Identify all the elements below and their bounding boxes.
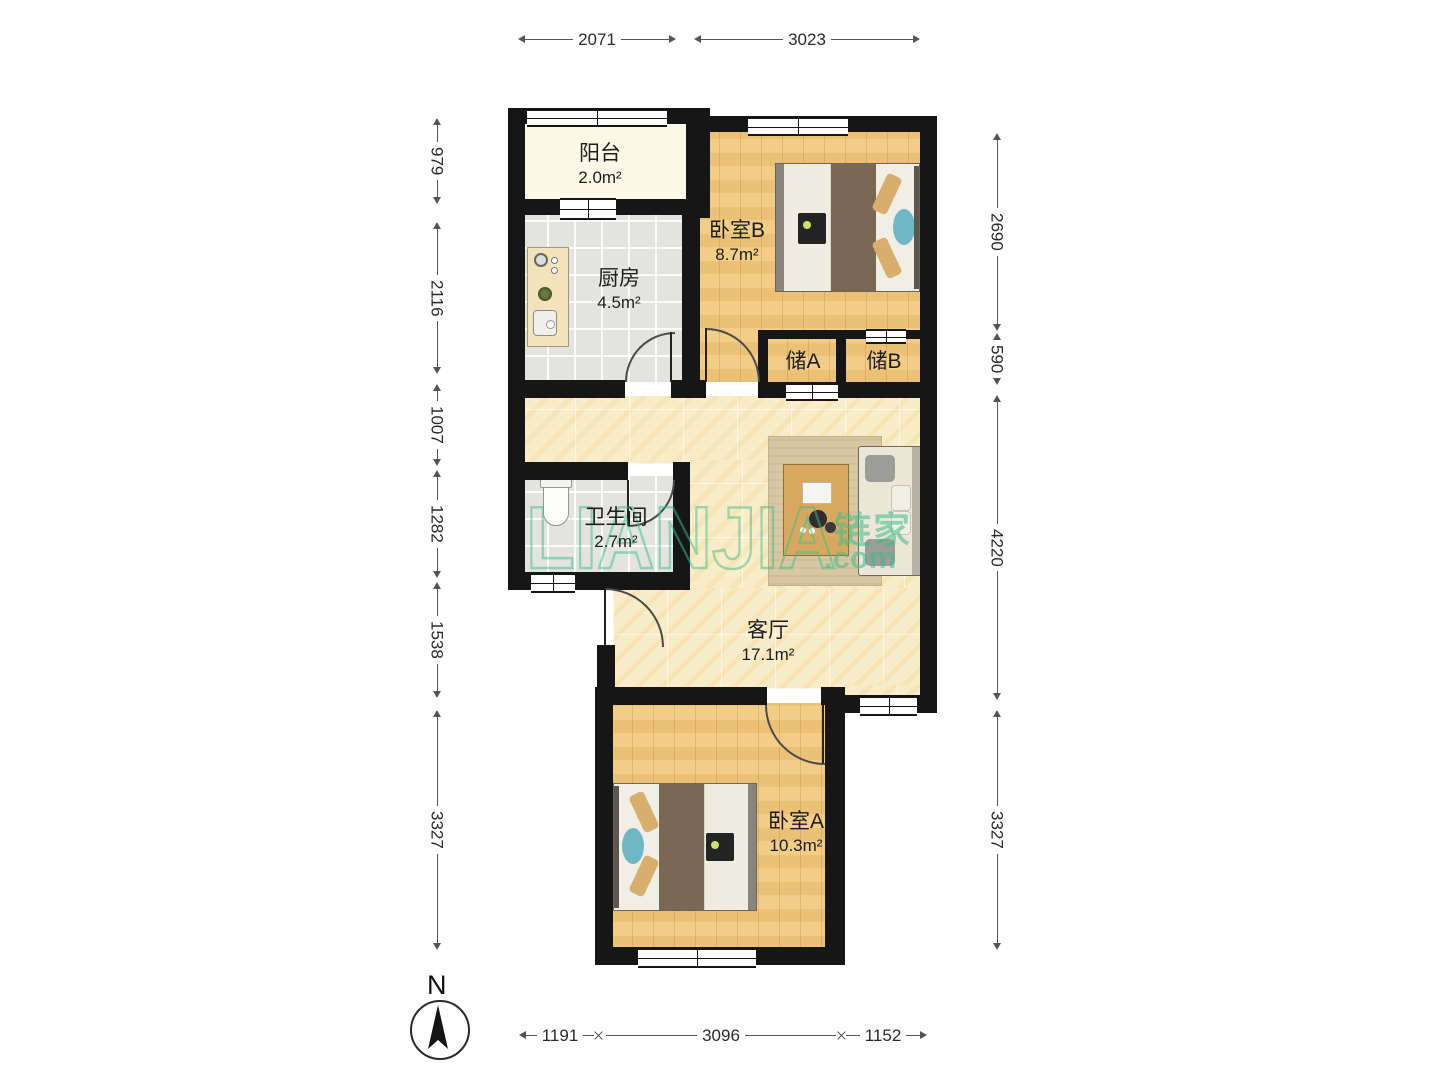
sofa-pillow: [891, 511, 911, 535]
dimension-right-4: 3327: [986, 710, 1008, 950]
dim-line: [997, 402, 998, 524]
room-label-storage-b: 储B: [866, 348, 901, 375]
dim-value: 3327: [429, 806, 446, 854]
sofa-pillow: [891, 485, 911, 511]
headboard: [614, 786, 619, 908]
room-name: 厨房: [597, 265, 640, 292]
arrow-up-icon: [433, 582, 441, 589]
wall: [825, 687, 845, 965]
door-leaf-bedroom-a: [822, 705, 824, 763]
bed-frame: [748, 784, 756, 910]
dimension-right-1: 2690: [986, 133, 1008, 331]
room-area: 4.5m²: [597, 292, 640, 314]
nightstand: [706, 833, 734, 861]
room-name: 卫生间: [585, 504, 648, 531]
coffee-table: [783, 464, 849, 556]
dim-value: 1191: [537, 1027, 584, 1044]
dim-value: 590: [989, 340, 1006, 378]
dim-line: [525, 39, 573, 40]
dim-value: 1007: [429, 401, 446, 449]
knob-icon: [551, 267, 558, 274]
dim-value: 3023: [783, 31, 831, 48]
arrow-up-icon: [433, 710, 441, 717]
dimension-right-3: 4220: [986, 395, 1008, 700]
dim-line: [583, 1035, 594, 1036]
storage-a-sliding-door: [786, 383, 838, 401]
window: [638, 948, 756, 968]
knob-icon: [551, 257, 558, 264]
arrow-up-icon: [433, 118, 441, 125]
dim-line: [437, 391, 438, 401]
room-area: 17.1m²: [742, 644, 795, 666]
bed-blanket: [659, 784, 704, 910]
round-pillow-icon: [893, 209, 915, 245]
bed-double-b: [775, 163, 920, 292]
dim-value: 1538: [429, 616, 446, 664]
room-name: 储B: [866, 348, 901, 375]
dim-line: [437, 477, 438, 500]
room-name: 客厅: [742, 617, 795, 644]
wall: [700, 380, 706, 398]
window: [531, 573, 575, 593]
dim-x-mark: [594, 1031, 603, 1040]
arrow-up-icon: [993, 133, 1001, 140]
wall: [673, 462, 690, 590]
dim-value: 4220: [989, 524, 1006, 572]
nightstand: [798, 213, 826, 244]
dimension-left-1: 979: [426, 118, 448, 204]
arrow-right-icon: [920, 1031, 927, 1039]
arrow-up-icon: [433, 470, 441, 477]
dim-line: [437, 180, 438, 197]
compass-north-label: N: [427, 970, 447, 1001]
dim-value: 3327: [989, 806, 1006, 854]
floor-plan-page: { "plan": { "rooms": { "balcony": {"name…: [0, 0, 1440, 1080]
dim-line: [437, 589, 438, 616]
room-name: 储A: [785, 348, 820, 375]
arrow-down-icon: [433, 459, 441, 466]
wall: [682, 215, 700, 398]
sofa: [858, 446, 922, 576]
dimension-left-3: 1007: [426, 384, 448, 466]
dim-line: [437, 854, 438, 943]
lamp-icon: [803, 221, 811, 229]
door-leaf-bedroom-b: [705, 328, 707, 382]
arrow-up-icon: [993, 333, 1001, 340]
bed-frame: [776, 164, 784, 291]
bed-double-a: [613, 783, 757, 911]
storage-b-opening: [866, 329, 906, 344]
pillow-icon: [871, 172, 902, 215]
cup-icon: [800, 527, 806, 533]
dimension-bottom-3: 1152: [837, 1026, 927, 1044]
arrow-down-icon: [433, 571, 441, 578]
dim-line: [997, 717, 998, 806]
wall: [920, 116, 937, 713]
dim-line: [997, 140, 998, 208]
dim-value: 3096: [697, 1027, 745, 1044]
window: [860, 696, 917, 716]
tray-icon: [802, 482, 832, 504]
door-leaf-kitchen: [670, 332, 672, 382]
wall: [508, 380, 625, 398]
arrow-down-icon: [433, 367, 441, 374]
compass-needle-icon: [412, 1002, 464, 1054]
wall: [597, 645, 615, 689]
wall: [595, 687, 613, 965]
wall: [508, 108, 525, 590]
dim-line: [621, 39, 669, 40]
sofa-back: [912, 447, 920, 575]
room-area: 2.0m²: [578, 167, 621, 189]
dim-line: [846, 1035, 860, 1036]
dim-line: [831, 39, 913, 40]
sofa-cushion: [865, 539, 895, 566]
dimension-left-4: 1282: [426, 470, 448, 578]
arrow-up-icon: [993, 710, 1001, 717]
dim-line: [437, 717, 438, 806]
dimension-left-5: 1538: [426, 582, 448, 698]
room-name: 阳台: [578, 140, 621, 167]
arrow-up-icon: [433, 222, 441, 229]
dim-value: 979: [429, 142, 446, 180]
dim-line: [437, 321, 438, 367]
dim-line: [606, 1035, 697, 1036]
arrow-right-icon: [913, 35, 920, 43]
room-area: 10.3m²: [768, 835, 824, 857]
dim-value: 2071: [573, 31, 621, 48]
dimension-top-1: 2071: [518, 30, 676, 48]
arrow-right-icon: [669, 35, 676, 43]
headboard: [914, 166, 919, 289]
arrow-down-icon: [433, 943, 441, 950]
toilet-bowl: [543, 487, 569, 526]
burner-icon: [534, 253, 548, 267]
sofa-cushion: [865, 455, 895, 482]
room-label-balcony: 阳台 2.0m²: [578, 140, 621, 189]
arrow-left-icon: [519, 1031, 526, 1039]
room-label-bedroom-a: 卧室A 10.3m²: [768, 808, 824, 857]
arrow-down-icon: [993, 693, 1001, 700]
room-label-bathroom: 卫生间 2.7m²: [585, 504, 648, 553]
dimension-top-2: 3023: [694, 30, 920, 48]
window: [748, 117, 848, 136]
arrow-left-icon: [518, 35, 525, 43]
arrow-down-icon: [433, 197, 441, 204]
dimension-left-6: 3327: [426, 710, 448, 950]
lamp-icon: [711, 841, 719, 849]
plant-icon: [538, 287, 552, 301]
dim-line: [437, 548, 438, 571]
arrow-left-icon: [694, 35, 701, 43]
arrow-down-icon: [993, 943, 1001, 950]
dim-line: [997, 571, 998, 693]
window: [527, 109, 667, 127]
wall: [595, 687, 767, 705]
faucet-icon: [546, 320, 555, 329]
dimension-left-2: 2116: [426, 222, 448, 374]
dim-line: [701, 39, 783, 40]
dim-line: [906, 1035, 920, 1036]
bed-blanket: [831, 164, 876, 291]
room-label-storage-a: 储A: [785, 348, 820, 375]
room-area: 2.7m²: [585, 531, 648, 553]
dim-line: [997, 854, 998, 943]
kitchen-counter: [527, 247, 569, 347]
dim-value: 2116: [429, 275, 446, 322]
toilet-icon: [540, 474, 572, 528]
dim-line: [437, 229, 438, 275]
cup-icon: [809, 528, 815, 534]
dim-line: [745, 1035, 836, 1036]
dimension-bottom-1: 1191: [519, 1026, 603, 1044]
arrow-up-icon: [433, 384, 441, 391]
dim-line: [437, 125, 438, 142]
room-label-living-room: 客厅 17.1m²: [742, 617, 795, 666]
dimension-bottom-2: 3096: [606, 1026, 836, 1044]
room-label-kitchen: 厨房 4.5m²: [597, 265, 640, 314]
dim-line: [997, 256, 998, 324]
compass-icon: [410, 1000, 470, 1060]
arrow-down-icon: [993, 378, 1001, 385]
dim-line: [437, 664, 438, 691]
door-leaf-entry: [604, 588, 606, 645]
cup-icon: [825, 522, 836, 533]
room-name: 卧室B: [709, 217, 765, 244]
arrow-up-icon: [993, 395, 1001, 402]
room-label-bedroom-b: 卧室B 8.7m²: [709, 217, 765, 266]
wall: [508, 462, 628, 480]
dim-line: [526, 1035, 537, 1036]
arrow-down-icon: [993, 324, 1001, 331]
room-area: 8.7m²: [709, 244, 765, 266]
dim-line: [437, 449, 438, 459]
wall: [758, 382, 920, 398]
dim-value: 1282: [429, 500, 446, 548]
balcony-railing-window: [560, 198, 616, 220]
arrow-down-icon: [433, 691, 441, 698]
dim-value: 1152: [860, 1027, 907, 1044]
room-name: 卧室A: [768, 808, 824, 835]
wall: [671, 380, 682, 398]
dim-x-mark: [837, 1031, 846, 1040]
dim-value: 2690: [989, 208, 1006, 256]
dimension-right-2: 590: [986, 333, 1008, 391]
round-pillow-icon: [622, 828, 644, 864]
